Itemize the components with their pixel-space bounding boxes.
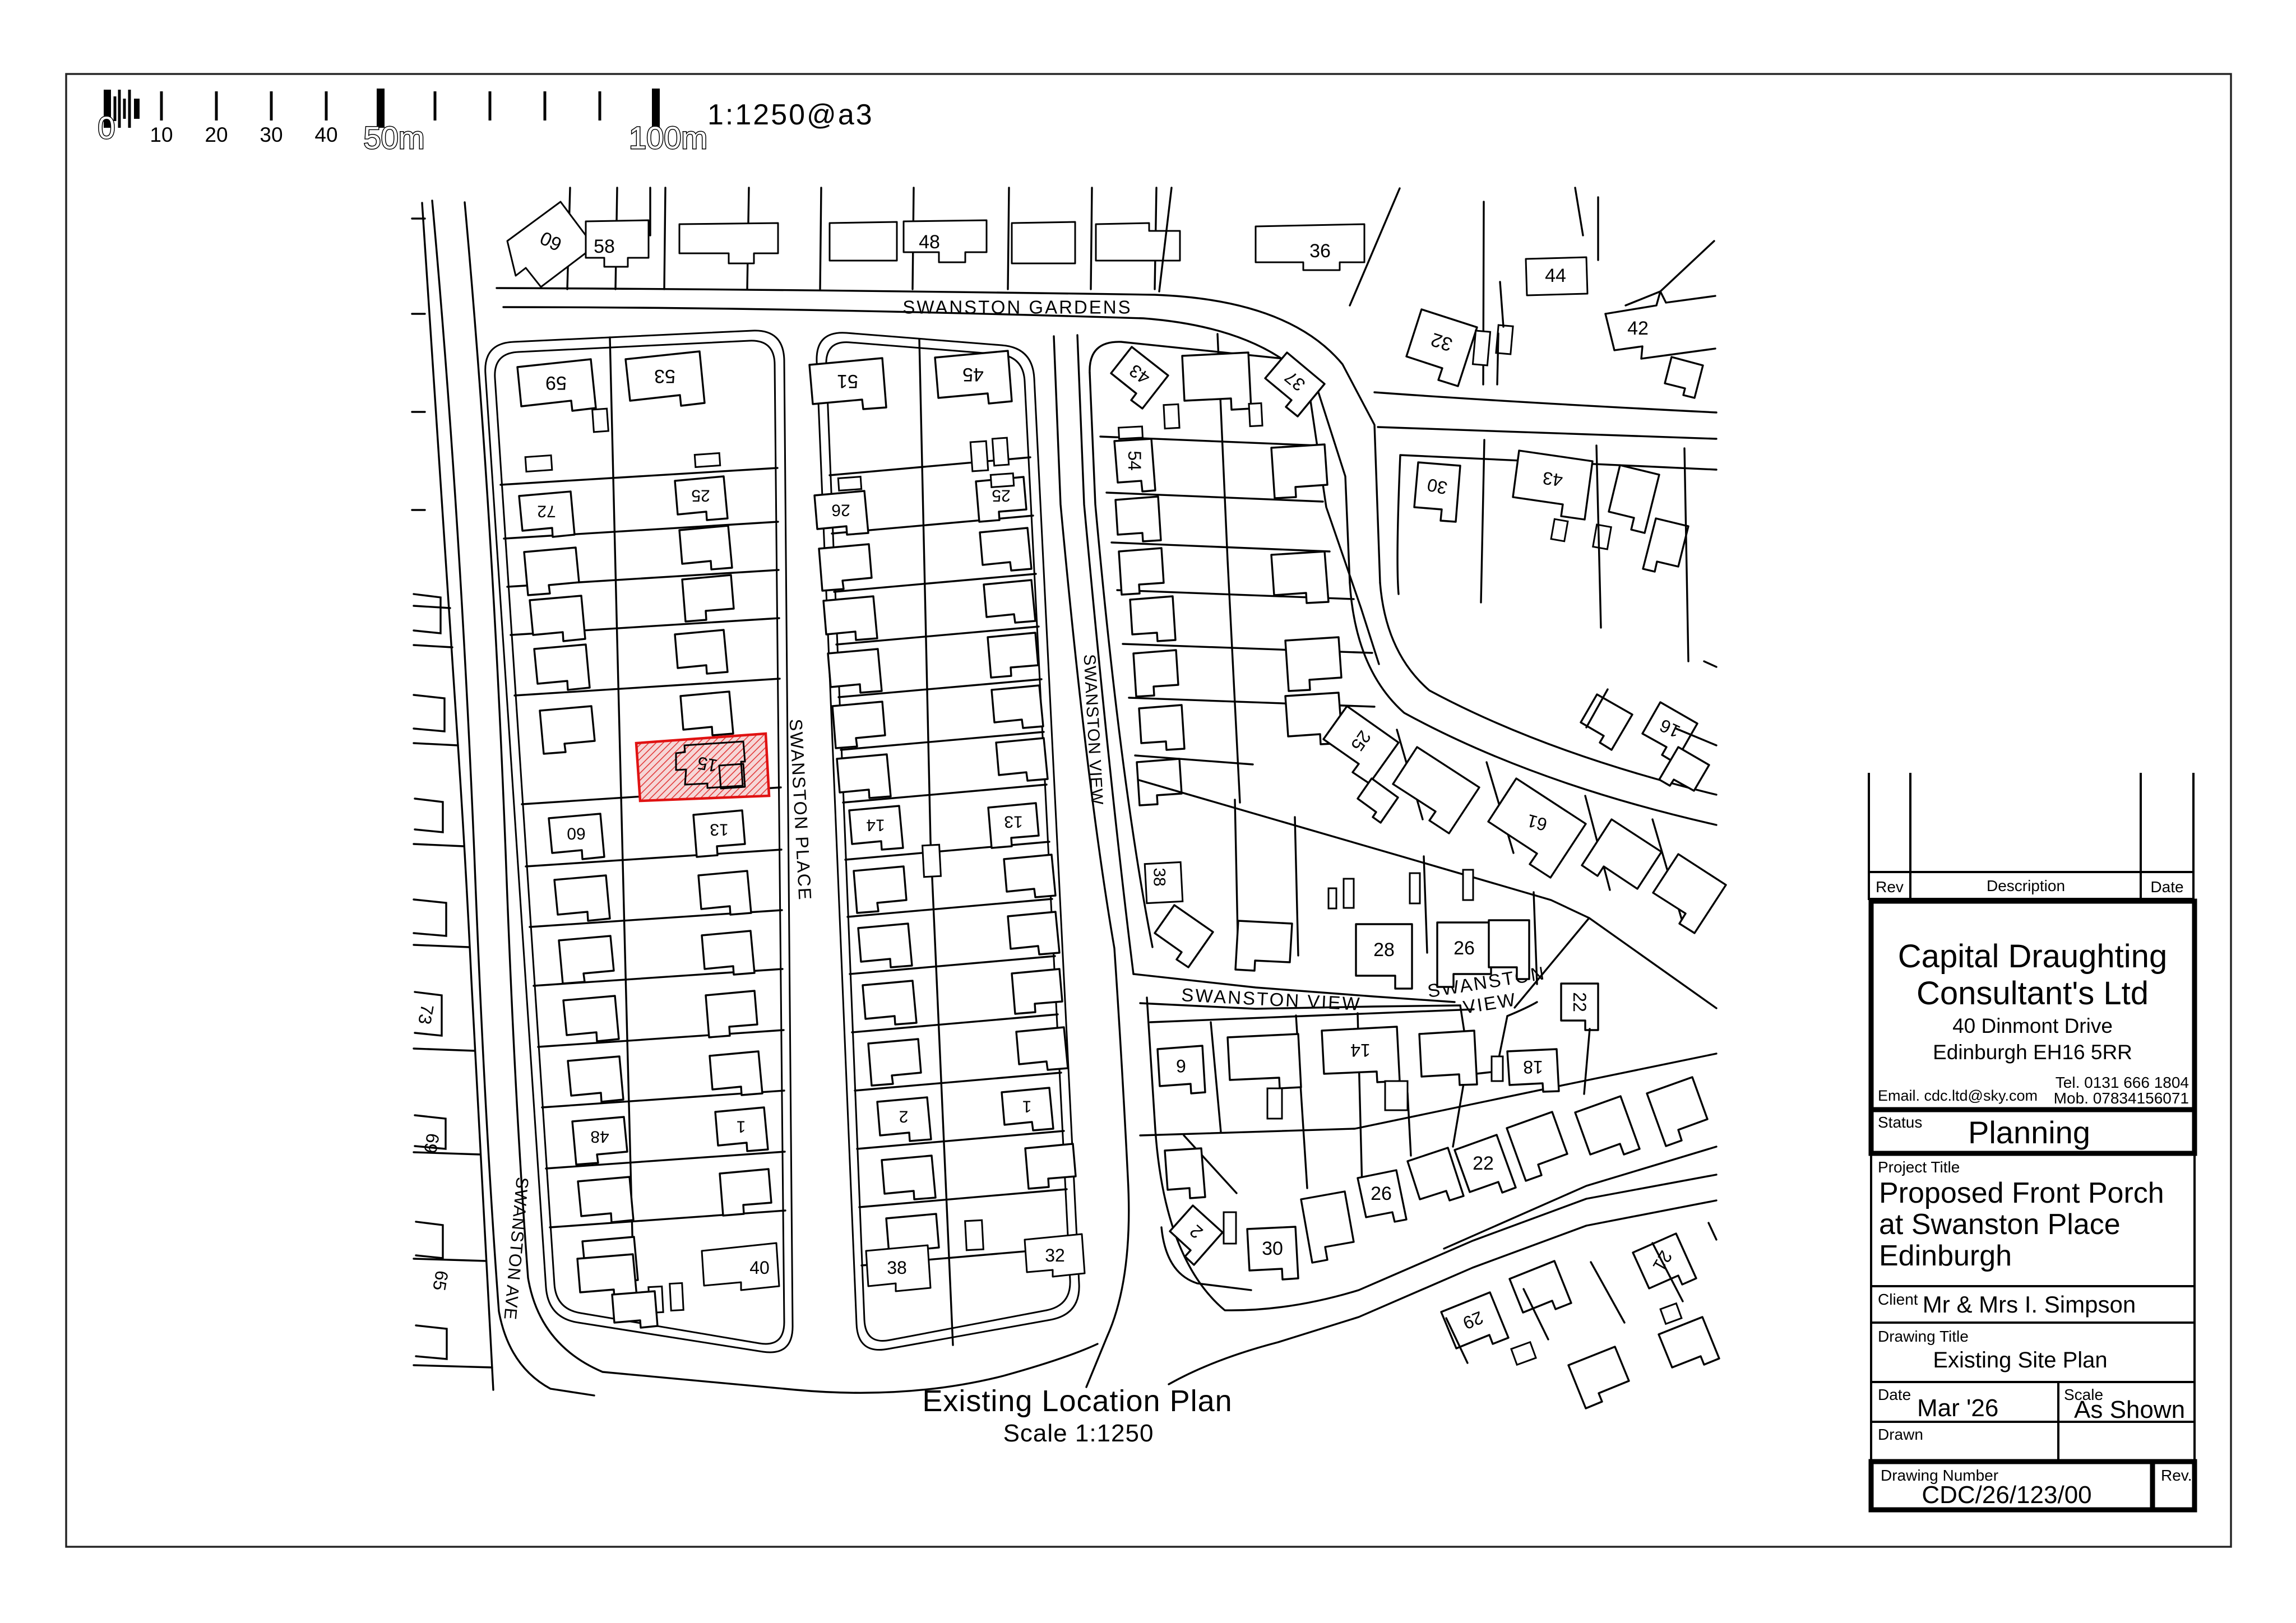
svg-text:Rev.: Rev. — [2161, 1467, 2192, 1484]
svg-text:14: 14 — [866, 816, 885, 834]
svg-text:1: 1 — [737, 1117, 746, 1136]
svg-text:25: 25 — [691, 486, 710, 505]
svg-text:Drawn: Drawn — [1878, 1426, 1923, 1443]
svg-text:Client: Client — [1878, 1291, 1918, 1308]
svg-text:SWANSTON GARDENS: SWANSTON GARDENS — [902, 297, 1132, 318]
svg-text:Rev: Rev — [1876, 878, 1904, 896]
svg-text:13: 13 — [710, 820, 728, 839]
svg-text:Planning: Planning — [1968, 1115, 2090, 1150]
svg-text:30: 30 — [1262, 1238, 1283, 1259]
svg-text:22: 22 — [1473, 1153, 1494, 1174]
svg-text:Project Title: Project Title — [1878, 1158, 1960, 1176]
svg-text:73: 73 — [414, 1003, 438, 1026]
svg-text:58: 58 — [594, 236, 615, 257]
svg-text:44: 44 — [1545, 265, 1566, 286]
svg-text:26: 26 — [831, 501, 850, 520]
svg-text:Edinburgh EH16 5RR: Edinburgh EH16 5RR — [1933, 1041, 2132, 1064]
svg-text:Email. cdc.ltd@sky.com: Email. cdc.ltd@sky.com — [1878, 1087, 2038, 1104]
svg-text:Edinburgh: Edinburgh — [1879, 1240, 2012, 1272]
svg-text:26: 26 — [1371, 1183, 1392, 1204]
svg-text:25: 25 — [992, 486, 1010, 505]
svg-text:53: 53 — [654, 365, 675, 387]
svg-text:26: 26 — [1453, 938, 1475, 959]
svg-text:Capital Draughting: Capital Draughting — [1898, 938, 2167, 975]
svg-text:Mr & Mrs I. Simpson: Mr & Mrs I. Simpson — [1923, 1291, 2136, 1318]
svg-text:2: 2 — [899, 1107, 909, 1126]
svg-text:40 Dinmont Drive: 40 Dinmont Drive — [1952, 1014, 2113, 1037]
svg-text:32: 32 — [1045, 1245, 1065, 1265]
svg-text:60: 60 — [567, 824, 585, 843]
svg-text:Mar '26: Mar '26 — [1917, 1394, 1998, 1422]
svg-text:Mob. 07834156071: Mob. 07834156071 — [2054, 1089, 2189, 1107]
svg-text:38: 38 — [1150, 868, 1169, 886]
svg-text:at Swanston Place: at Swanston Place — [1879, 1208, 2121, 1241]
svg-text:54: 54 — [1124, 451, 1145, 471]
svg-text:59: 59 — [545, 372, 567, 393]
svg-text:6: 6 — [1176, 1056, 1186, 1076]
svg-text:28: 28 — [1373, 939, 1395, 961]
svg-text:Scale 1:1250: Scale 1:1250 — [1003, 1420, 1154, 1447]
svg-text:Existing Location Plan: Existing Location Plan — [922, 1384, 1232, 1418]
svg-text:13: 13 — [1004, 813, 1022, 831]
svg-text:38: 38 — [887, 1258, 907, 1278]
svg-text:48: 48 — [919, 231, 940, 253]
svg-text:65: 65 — [429, 1269, 452, 1292]
svg-text:30: 30 — [260, 123, 283, 146]
svg-text:15: 15 — [696, 753, 719, 776]
svg-text:As Shown: As Shown — [2074, 1396, 2185, 1423]
svg-text:22: 22 — [1570, 992, 1590, 1012]
svg-text:Existing Site Plan: Existing Site Plan — [1933, 1348, 2107, 1372]
svg-text:100m: 100m — [629, 120, 707, 155]
svg-text:20: 20 — [205, 123, 228, 146]
svg-text:72: 72 — [537, 502, 556, 521]
svg-text:Tel. 0131 666 1804: Tel. 0131 666 1804 — [2056, 1074, 2189, 1091]
svg-text:40: 40 — [749, 1258, 770, 1278]
svg-text:Date: Date — [2150, 878, 2183, 896]
svg-text:18: 18 — [1523, 1057, 1543, 1077]
svg-text:50m: 50m — [364, 120, 425, 155]
svg-text:Consultant's Ltd: Consultant's Ltd — [1917, 975, 2149, 1012]
svg-text:14: 14 — [1350, 1040, 1371, 1060]
svg-text:Description: Description — [1987, 877, 2065, 894]
svg-text:10: 10 — [150, 123, 173, 146]
svg-text:42: 42 — [1627, 318, 1649, 339]
svg-text:1:1250@a3: 1:1250@a3 — [707, 99, 874, 131]
svg-text:45: 45 — [962, 364, 984, 385]
svg-text:51: 51 — [837, 370, 858, 392]
svg-text:Drawing Title: Drawing Title — [1878, 1328, 1969, 1345]
svg-text:69: 69 — [420, 1132, 443, 1154]
svg-text:Proposed Front Porch: Proposed Front Porch — [1879, 1177, 2164, 1209]
svg-text:43: 43 — [1542, 468, 1564, 491]
svg-text:48: 48 — [590, 1128, 609, 1146]
svg-text:CDC/26/123/00: CDC/26/123/00 — [1922, 1481, 2091, 1509]
svg-text:1: 1 — [1022, 1097, 1032, 1116]
svg-text:40: 40 — [314, 123, 337, 146]
svg-text:0: 0 — [98, 110, 115, 145]
svg-text:Date: Date — [1878, 1386, 1911, 1403]
svg-text:Status: Status — [1878, 1114, 1922, 1131]
svg-text:30: 30 — [1425, 475, 1449, 499]
svg-text:36: 36 — [1309, 240, 1331, 262]
